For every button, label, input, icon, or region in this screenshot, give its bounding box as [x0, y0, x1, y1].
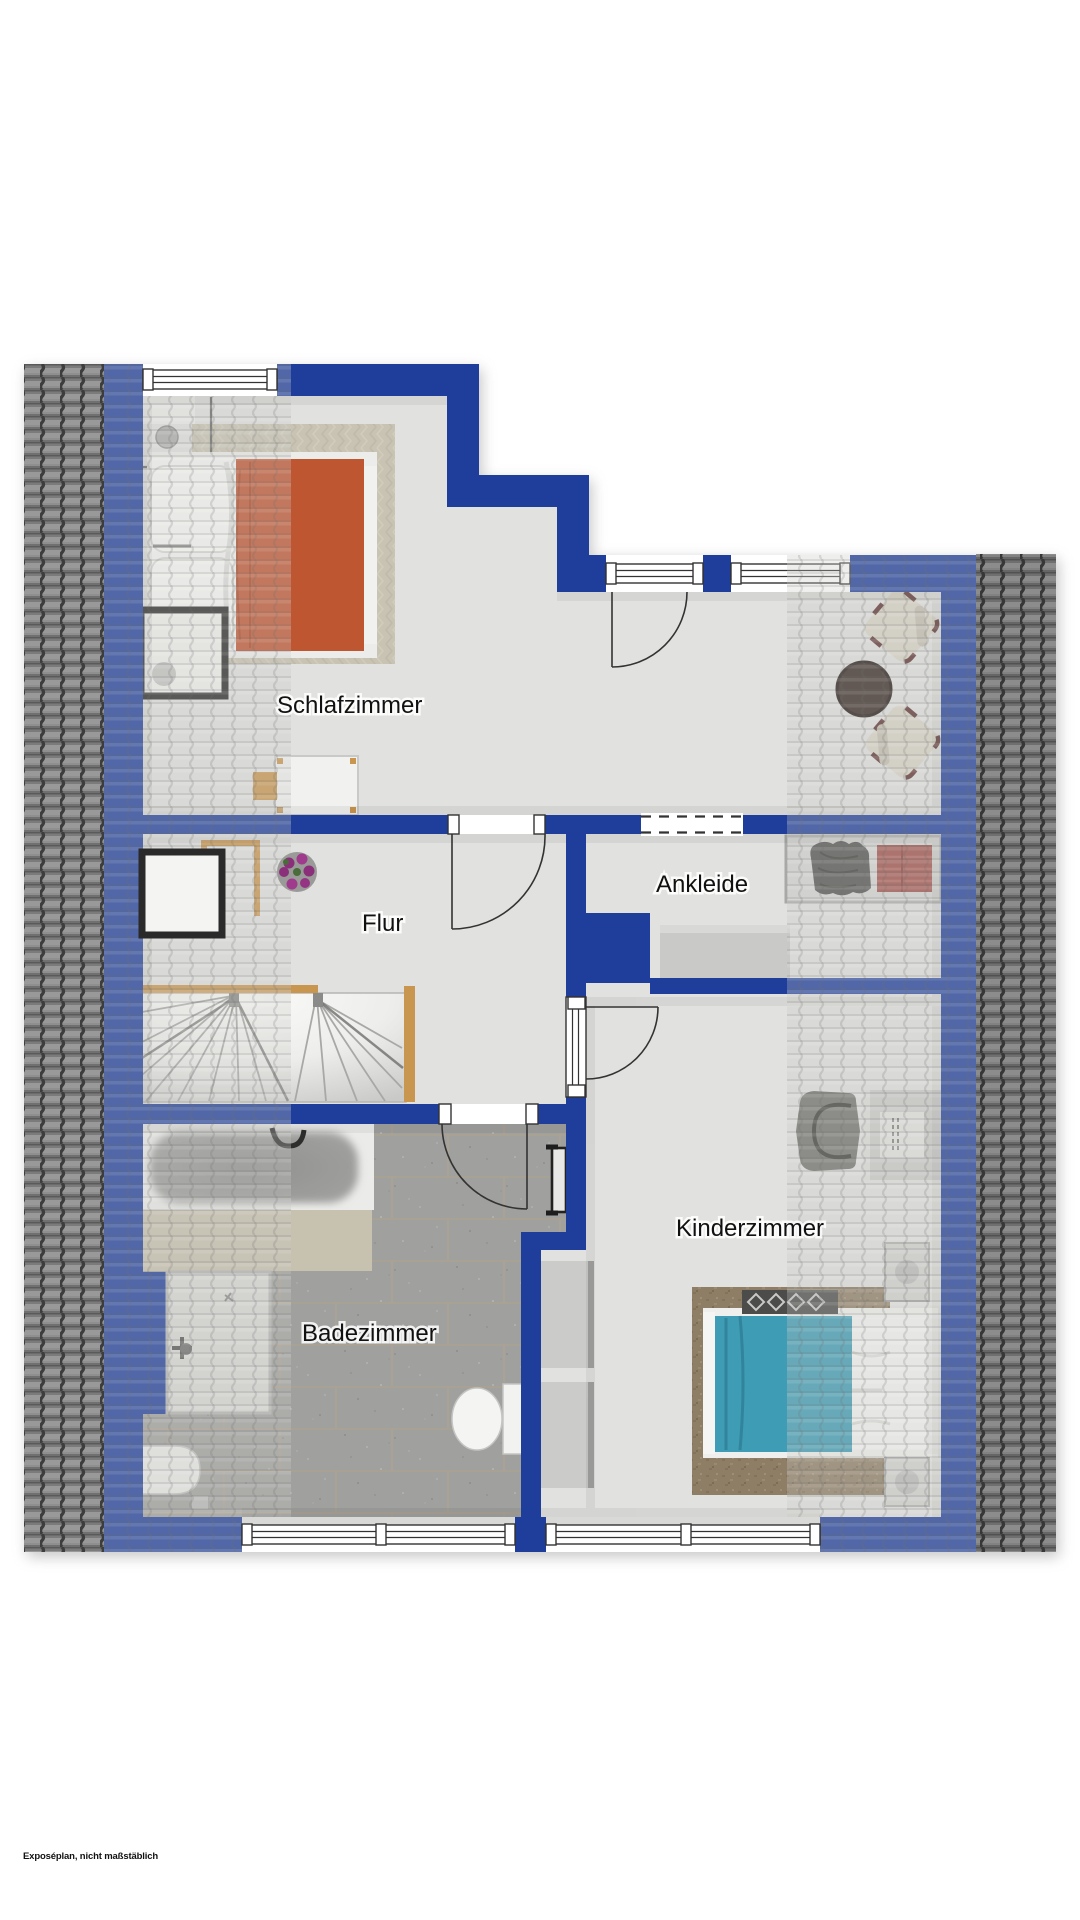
svg-text:Badezimmer: Badezimmer: [302, 1320, 437, 1347]
svg-text:Flur: Flur: [362, 910, 403, 937]
svg-text:Kinderzimmer: Kinderzimmer: [676, 1215, 824, 1242]
svg-text:Exposéplan, nicht maßstäblich: Exposéplan, nicht maßstäblich: [23, 1851, 158, 1862]
svg-text:Ankleide: Ankleide: [656, 871, 748, 898]
svg-text:Schlafzimmer: Schlafzimmer: [277, 692, 422, 719]
